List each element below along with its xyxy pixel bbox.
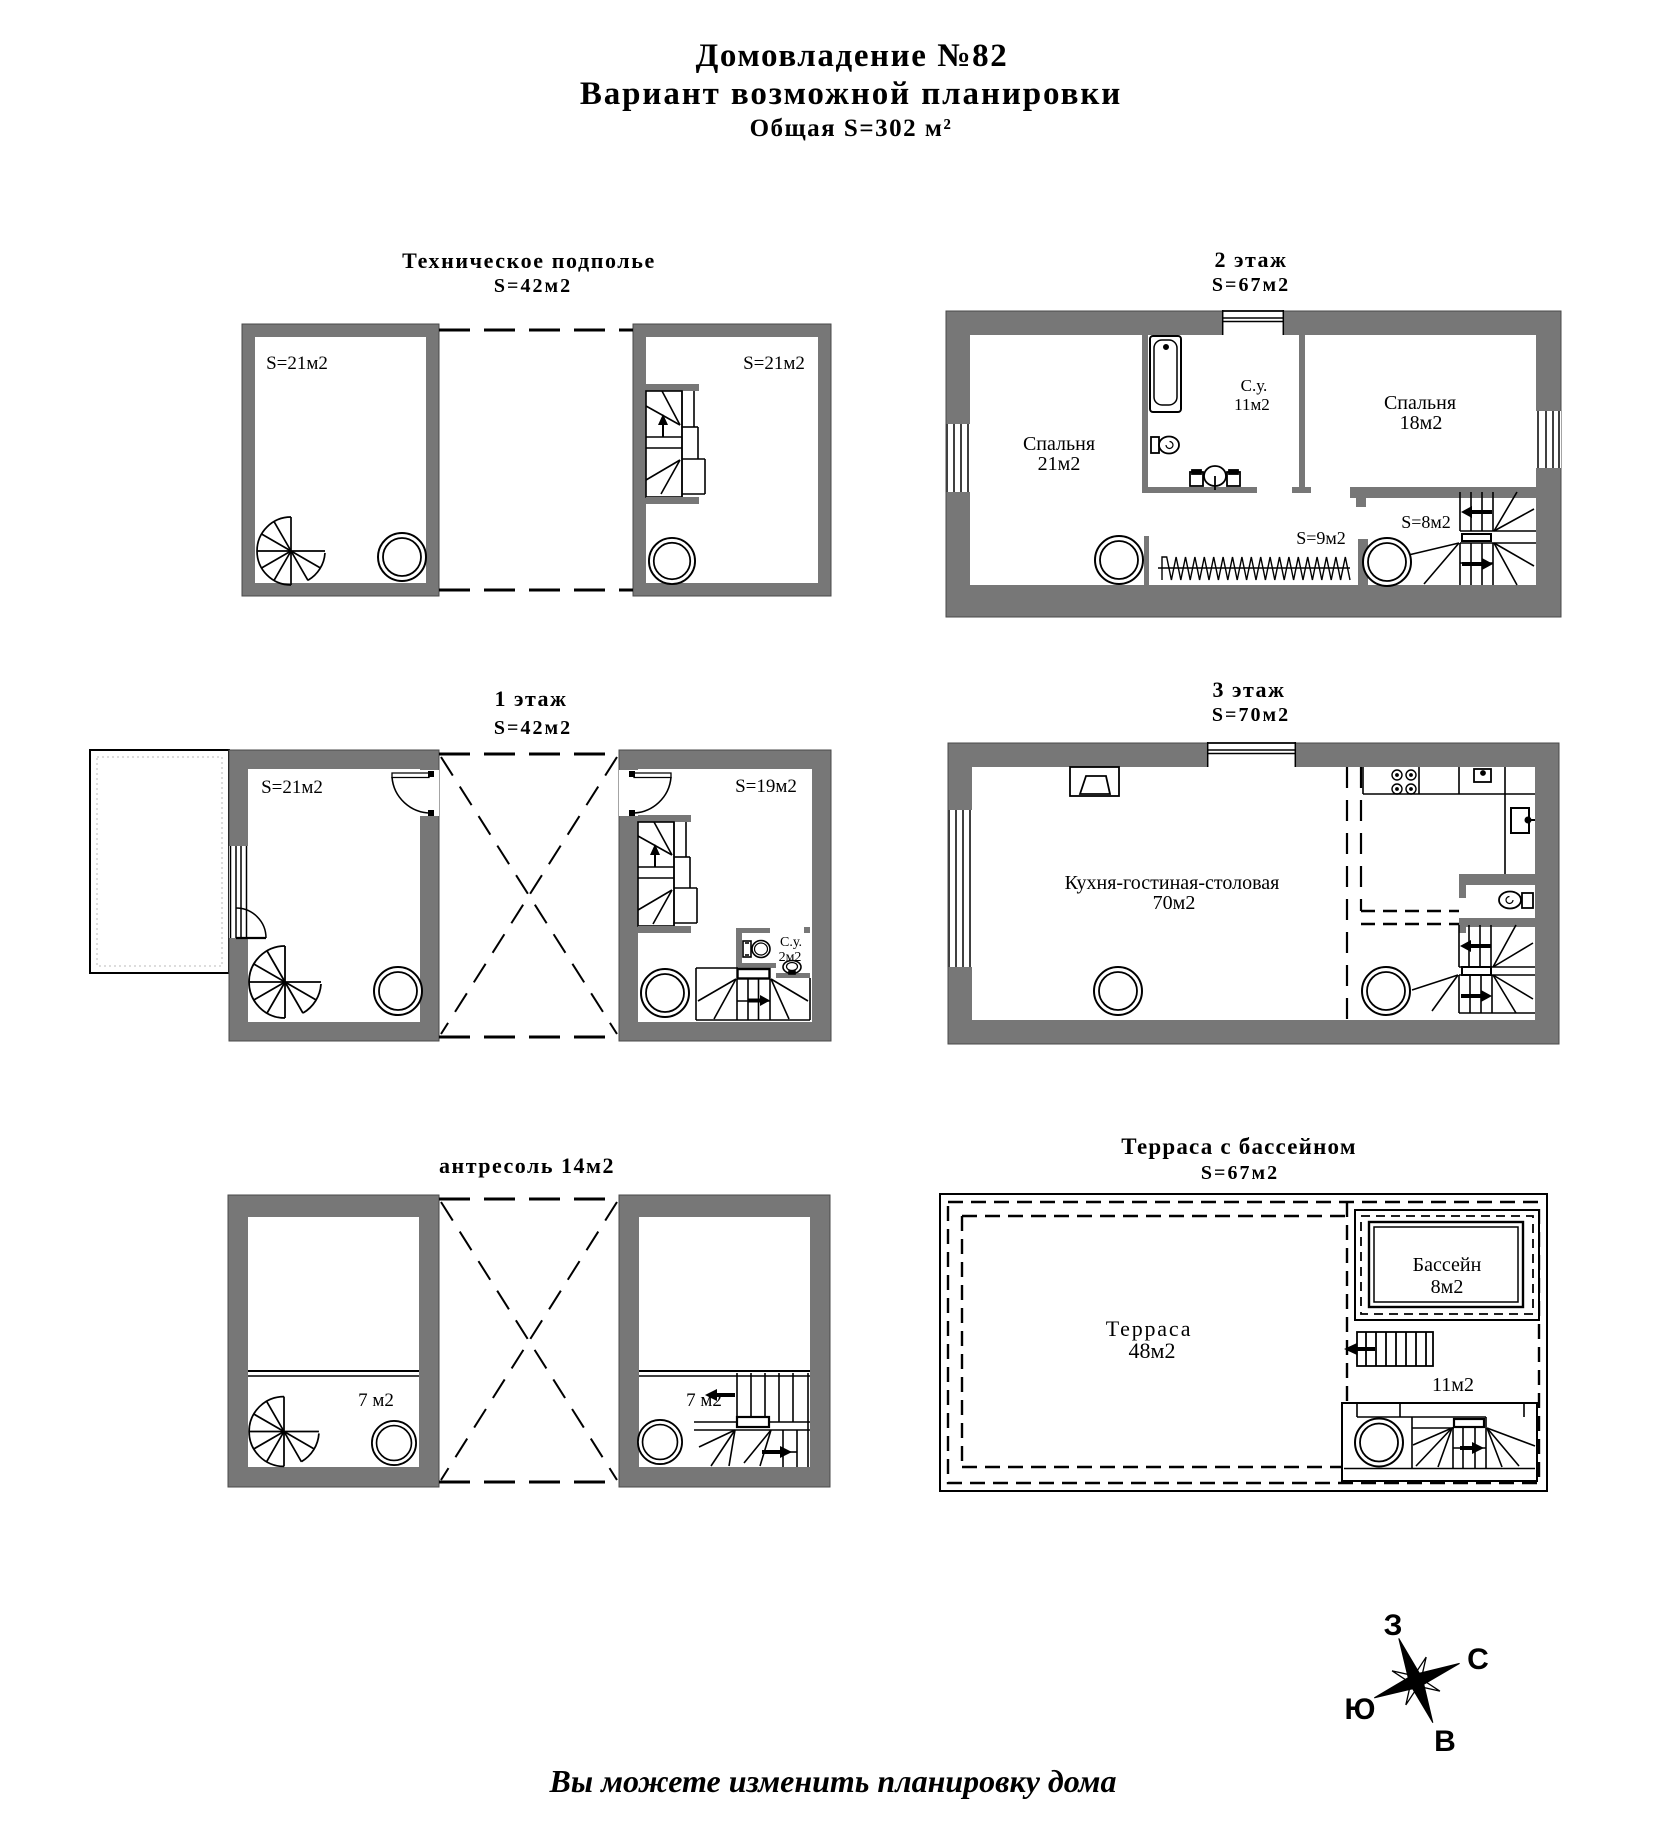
svg-text:48м2: 48м2 — [1129, 1338, 1176, 1363]
svg-text:S=70м2: S=70м2 — [1212, 704, 1290, 726]
svg-text:18м2: 18м2 — [1400, 412, 1443, 434]
svg-text:З: З — [1384, 1609, 1403, 1642]
svg-text:С.у.: С.у. — [780, 935, 802, 950]
svg-text:S=21м2: S=21м2 — [266, 353, 328, 374]
svg-text:S=21м2: S=21м2 — [743, 353, 805, 374]
svg-text:В: В — [1434, 1725, 1456, 1758]
svg-text:Общая S=302 м²: Общая S=302 м² — [750, 115, 953, 142]
svg-text:S=67м2: S=67м2 — [1212, 274, 1290, 296]
svg-text:S=42м2: S=42м2 — [494, 275, 572, 297]
svg-text:S=9м2: S=9м2 — [1296, 528, 1346, 548]
svg-text:1 этаж: 1 этаж — [494, 686, 567, 711]
svg-text:Ю: Ю — [1345, 1693, 1376, 1726]
svg-text:Домовладение №82: Домовладение №82 — [696, 38, 1009, 74]
svg-text:Техническое подполье: Техническое подполье — [402, 248, 656, 273]
svg-text:7 м2: 7 м2 — [358, 1390, 394, 1411]
svg-text:8м2: 8м2 — [1431, 1276, 1464, 1298]
svg-text:Спальня: Спальня — [1384, 392, 1456, 414]
svg-text:Вы можете изменить планировку: Вы можете изменить планировку дома — [549, 1763, 1117, 1799]
svg-text:11м2: 11м2 — [1432, 1374, 1474, 1396]
svg-text:11м2: 11м2 — [1234, 395, 1270, 414]
svg-text:Спальня: Спальня — [1023, 433, 1095, 455]
svg-text:S=8м2: S=8м2 — [1401, 512, 1451, 532]
svg-text:S=21м2: S=21м2 — [261, 777, 323, 798]
svg-text:3 этаж: 3 этаж — [1212, 677, 1285, 702]
svg-text:S=19м2: S=19м2 — [735, 776, 797, 797]
svg-text:Терраса с бассейном: Терраса с бассейном — [1121, 1134, 1356, 1159]
svg-text:антресоль 14м2: антресоль 14м2 — [439, 1153, 615, 1178]
svg-text:2м2: 2м2 — [779, 950, 802, 965]
svg-text:S=67м2: S=67м2 — [1201, 1162, 1279, 1184]
svg-text:S=42м2: S=42м2 — [494, 717, 572, 739]
svg-text:2 этаж: 2 этаж — [1214, 247, 1287, 272]
svg-text:С: С — [1467, 1643, 1489, 1676]
svg-text:70м2: 70м2 — [1153, 892, 1196, 914]
svg-text:21м2: 21м2 — [1038, 453, 1081, 475]
svg-text:Вариант возможной планировки: Вариант возможной планировки — [580, 76, 1122, 112]
svg-text:Кухня-гостиная-столовая: Кухня-гостиная-столовая — [1065, 872, 1280, 894]
svg-text:С.у.: С.у. — [1241, 376, 1268, 395]
svg-text:Бассейн: Бассейн — [1413, 1254, 1482, 1276]
